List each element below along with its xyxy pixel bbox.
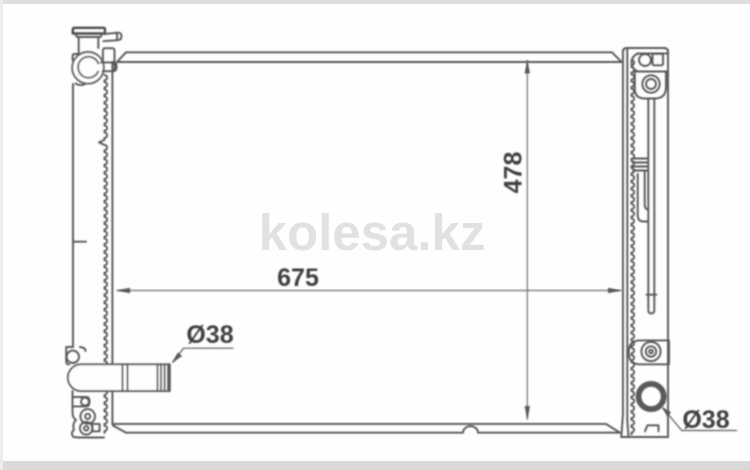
svg-text:kolesa.kz: kolesa.kz <box>259 204 486 261</box>
svg-text:478: 478 <box>500 152 528 194</box>
svg-text:675: 675 <box>277 264 319 292</box>
svg-text:Ø38: Ø38 <box>682 406 729 434</box>
svg-text:Ø38: Ø38 <box>186 321 233 349</box>
